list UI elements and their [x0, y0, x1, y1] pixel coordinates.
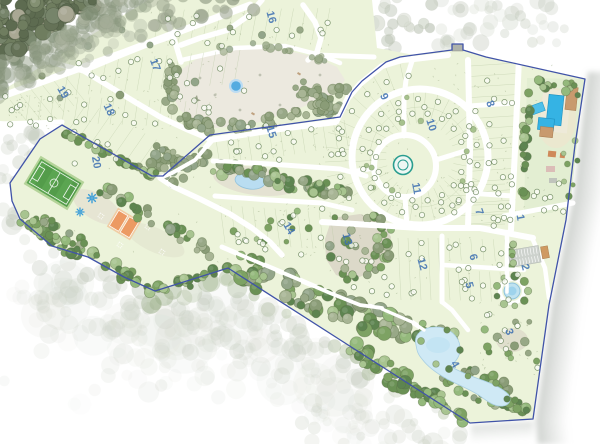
svg-text:20: 20	[89, 155, 103, 169]
svg-text:11: 11	[409, 182, 423, 196]
